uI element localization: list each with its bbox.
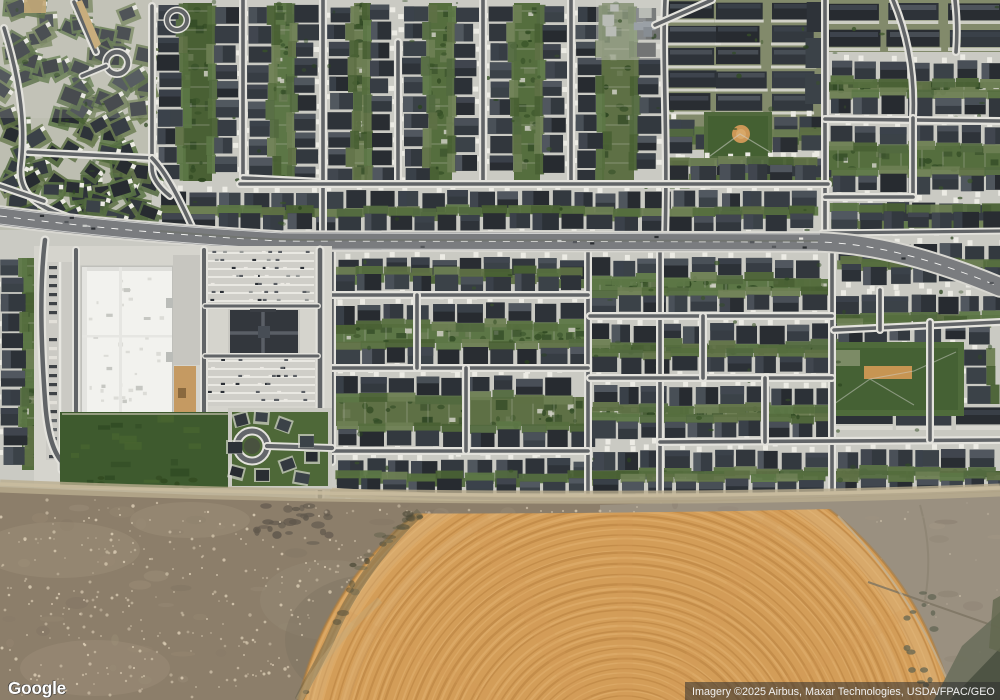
- svg-text:Google: Google: [8, 678, 66, 698]
- svg-text:Imagery ©2025 Airbus, Maxar Te: Imagery ©2025 Airbus, Maxar Technologies…: [692, 686, 995, 698]
